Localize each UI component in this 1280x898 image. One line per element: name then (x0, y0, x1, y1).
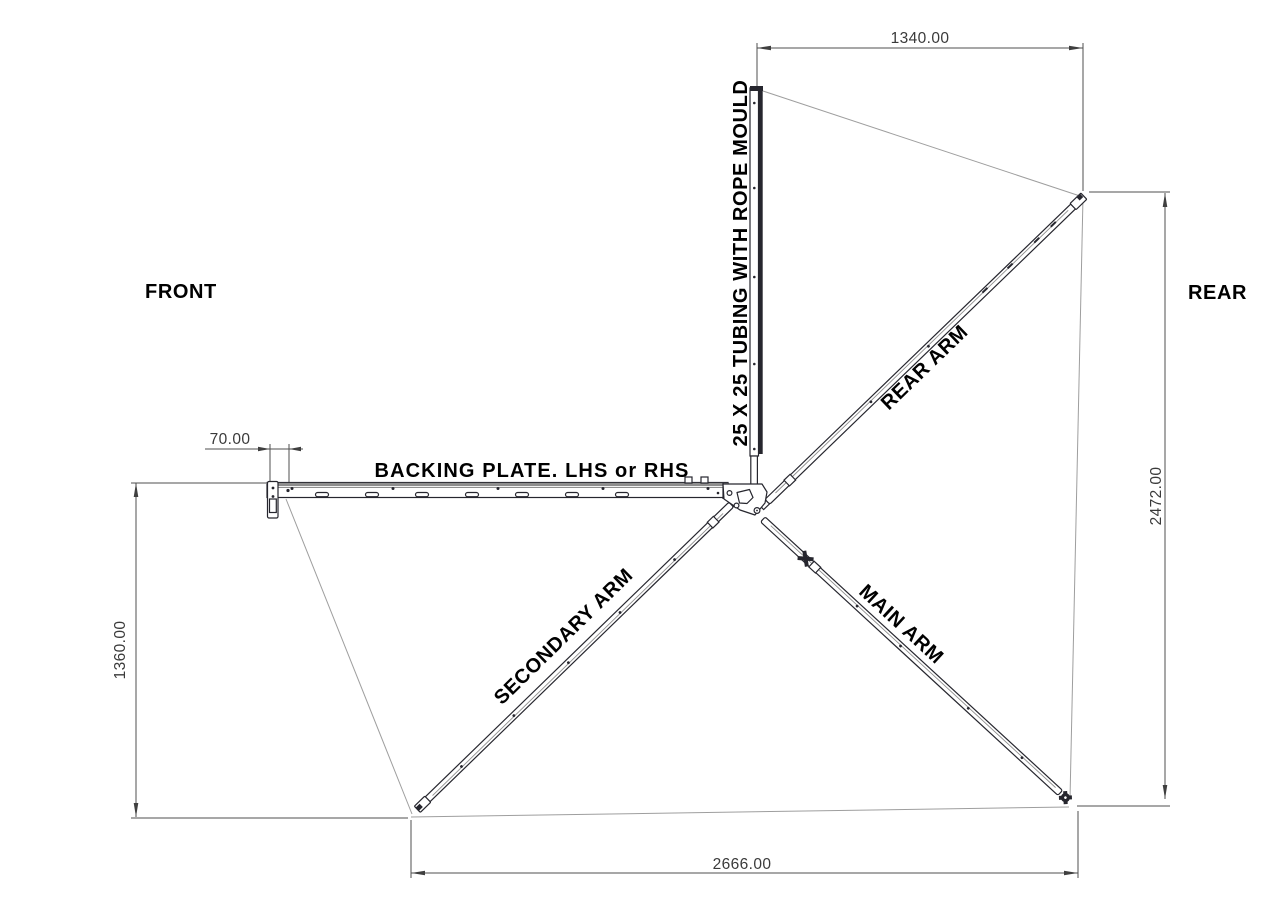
dim-plate-offset-value: 70.00 (210, 431, 251, 448)
secondary-arm (414, 496, 740, 813)
plate-left-bracket (268, 482, 279, 519)
drawing-sheet: 1340.00 2472.00 1360.00 2666.00 70.00 (0, 0, 1280, 898)
dim-front-height-value: 1360.00 (112, 621, 129, 680)
main-arm-label: MAIN ARM (855, 581, 948, 669)
dimension-rear-height: 2472.00 (1077, 192, 1170, 806)
main-arm (758, 515, 1074, 807)
backing-plate-label: BACKING PLATE. LHS or RHS (375, 460, 690, 482)
awning-frame-drawing: 1340.00 2472.00 1360.00 2666.00 70.00 (0, 0, 1280, 898)
dimension-top-width: 1340.00 (757, 30, 1083, 191)
rear-arm-label: REAR ARM (877, 321, 973, 415)
rear-arm (759, 193, 1087, 510)
tube-label: 25 X 25 TUBING WITH ROPE MOULD (730, 80, 752, 447)
rear-view-label: REAR (1188, 282, 1247, 304)
dimension-plate-offset: 70.00 (205, 431, 303, 489)
secondary-arm-label: SECONDARY ARM (490, 564, 638, 709)
dimension-front-height: 1360.00 (112, 483, 408, 818)
dim-bottom-width-value: 2666.00 (713, 856, 772, 873)
backing-plate (267, 477, 728, 518)
dim-rear-height-value: 2472.00 (1148, 467, 1165, 526)
dim-top-width-value: 1340.00 (891, 30, 950, 47)
front-view-label: FRONT (145, 281, 217, 303)
dimension-bottom-width: 2666.00 (411, 811, 1078, 878)
